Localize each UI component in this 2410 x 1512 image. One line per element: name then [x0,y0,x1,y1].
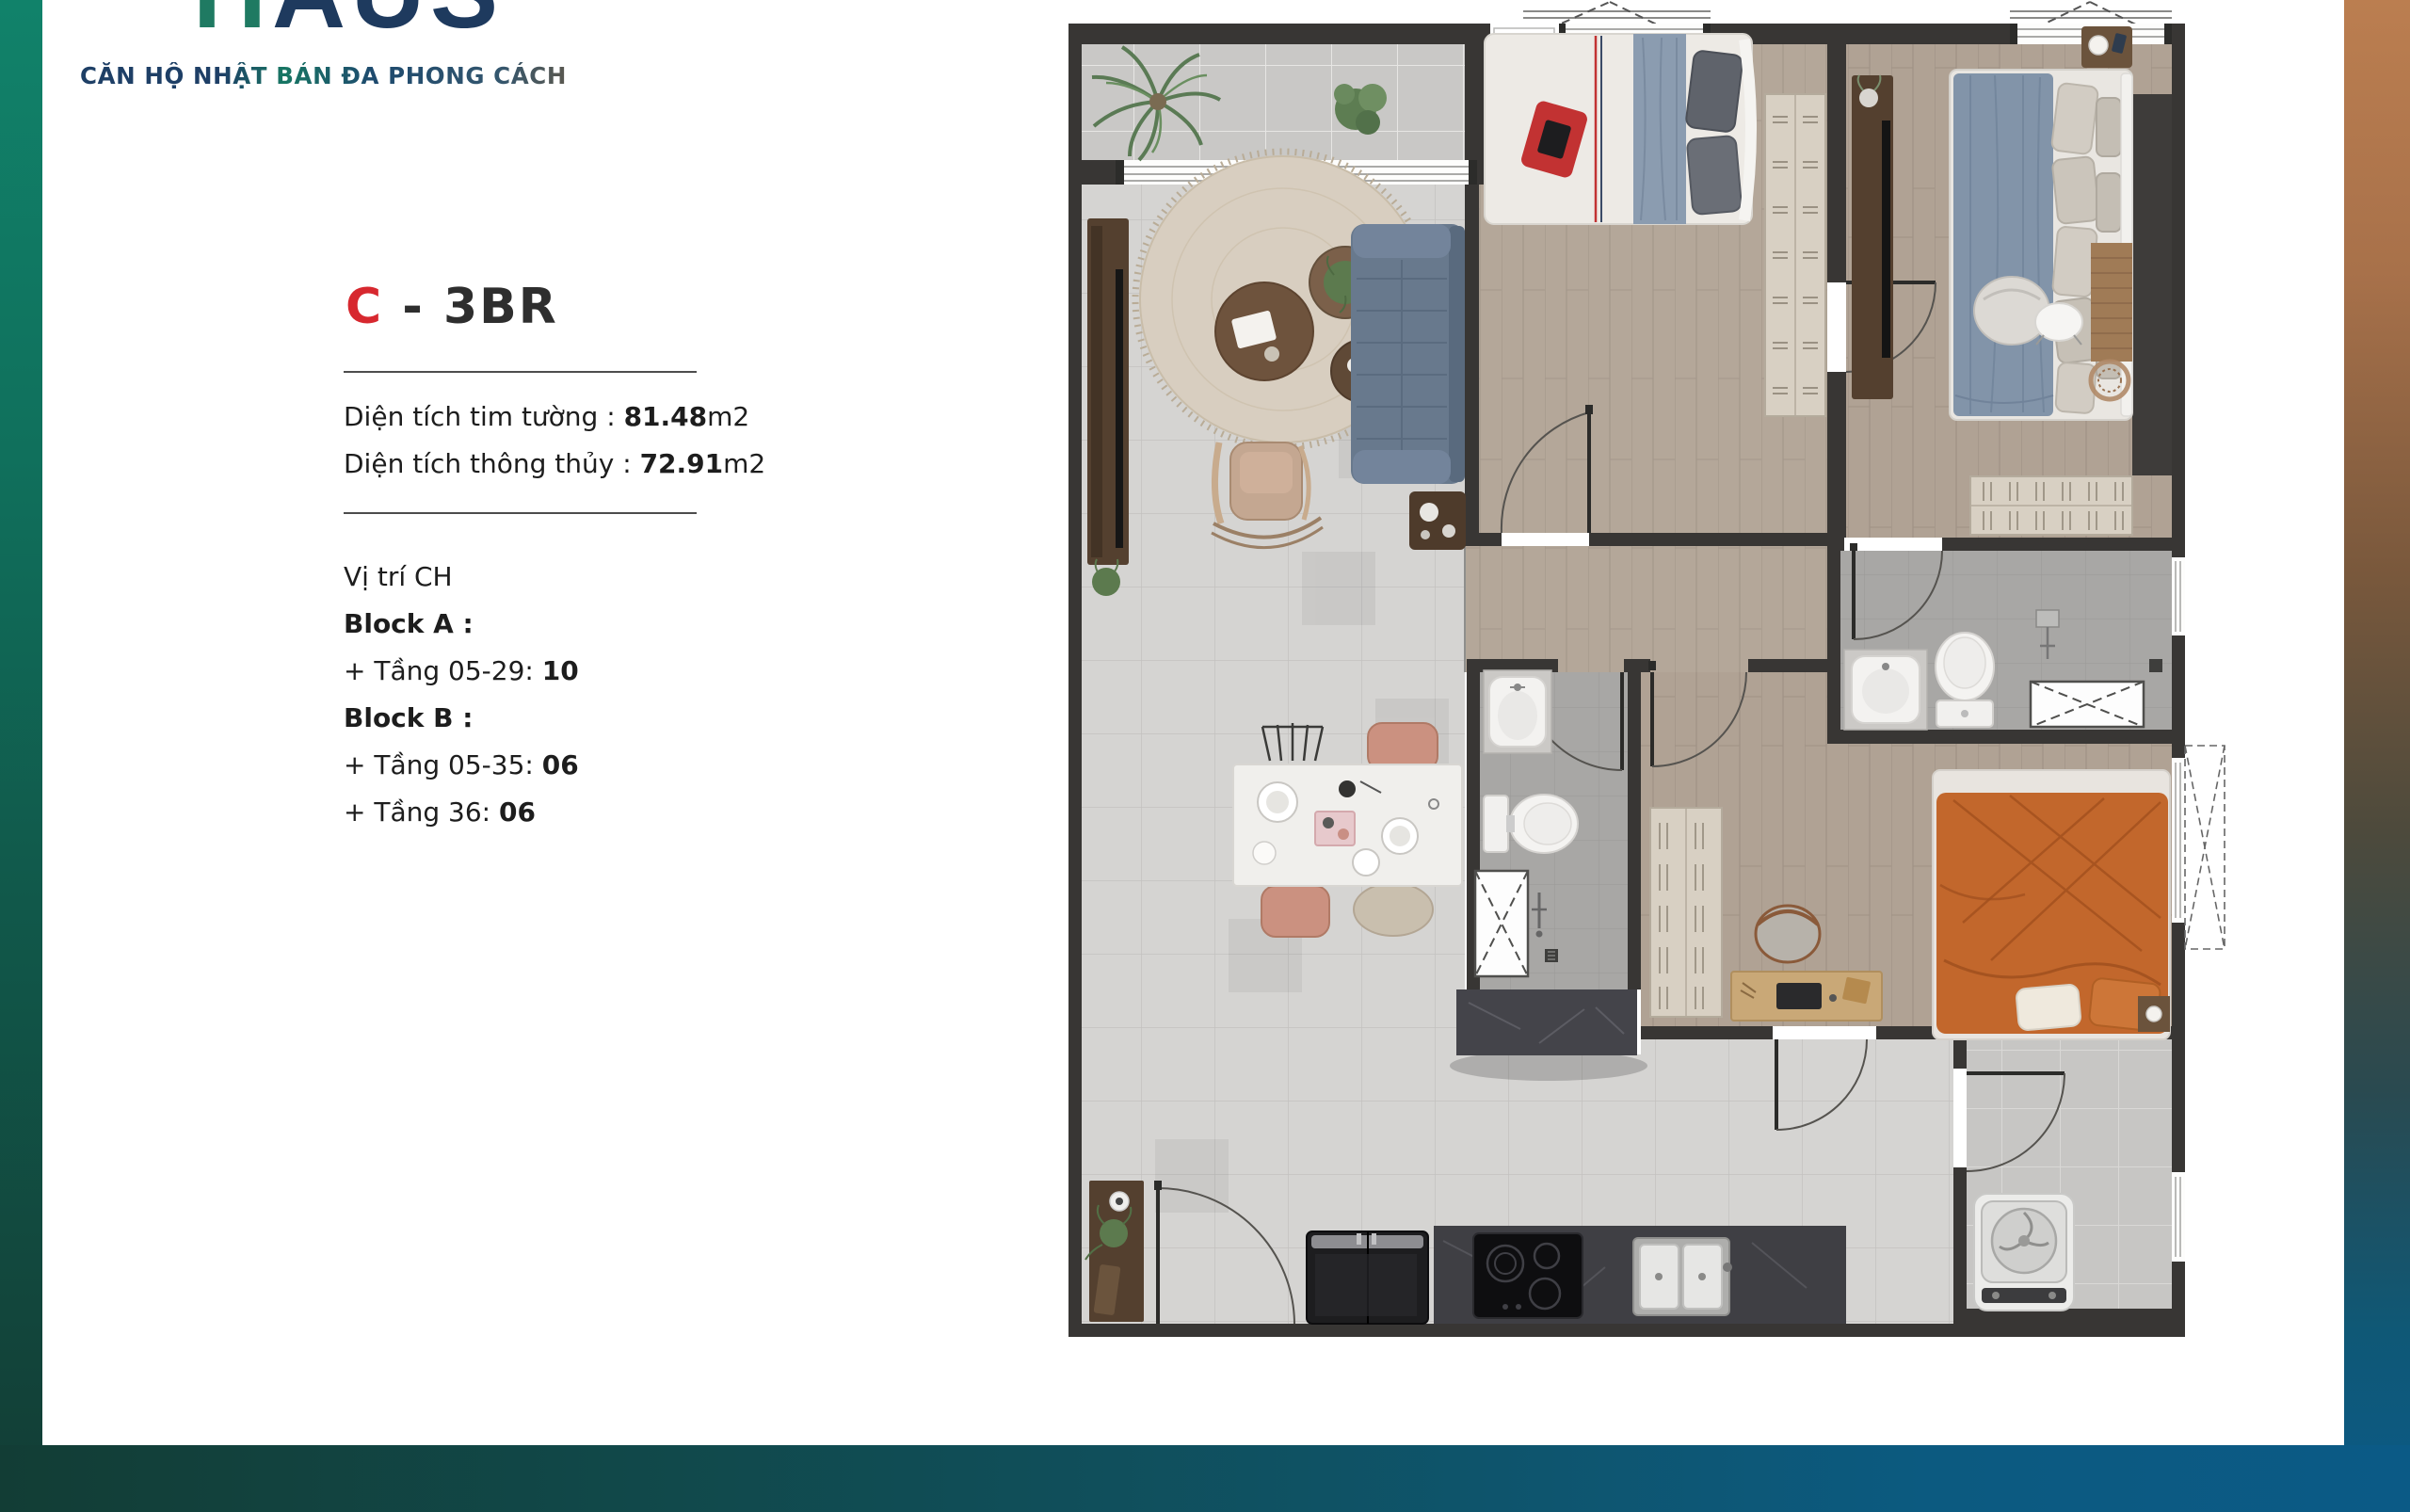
bedroom3-desk [1731,972,1882,1021]
side-table [1409,491,1466,550]
bottom-accent-bar [0,1445,2410,1512]
divider-bottom [344,512,697,514]
cooktop [1473,1233,1583,1318]
area-row-net: Diện tích thông thủy : 72.91m2 [344,441,765,488]
location-block-a: Block A : [344,601,474,648]
fridge [1307,1231,1428,1324]
left-accent-bar [0,0,42,1512]
location-row: + Tầng 05-29: 10 [344,648,579,695]
bedroom3-nightstand [2138,996,2170,1032]
hall-floor [1465,546,1827,672]
location-row: + Tầng 36: 06 [344,789,536,836]
master-wardrobe [1970,476,2132,535]
master-nightstand [2081,26,2132,68]
area-row-gross: Diện tích tim tường : 81.48m2 [344,394,749,441]
orange-bed [1933,770,2170,1039]
bathroom2-toilet [1484,795,1578,853]
location-row: + Tầng 05-35: 06 [344,742,579,789]
bedroom3-chair [1756,906,1820,962]
bed1 [1485,34,1752,224]
brand-logo: HAUS [193,0,588,38]
location-block-b: Block B : [344,695,473,742]
brand-logo-letter: H [193,0,272,38]
location-heading: Vị trí CH [344,554,453,601]
brand-logo-letters: AUS [272,0,504,38]
kitchen-sink [1633,1238,1732,1315]
bathroom1-sink [1844,650,1927,730]
page: { "brand": { "logo_text_first": "H", "lo… [0,0,2410,1512]
sofa [1351,224,1465,484]
laundry-window [2172,1172,2185,1262]
unit-code: C [345,279,383,335]
washing-machine [1974,1194,2074,1311]
divider-top [344,371,697,373]
bedroom3-closet [1650,808,1722,1017]
bathroom1-window [2172,557,2185,635]
bed1-wardrobe [1765,94,1825,416]
marble-counter [1450,989,1647,1081]
master-tv-console [1852,75,1893,399]
unit-title: C - 3BR [345,279,558,335]
tv-console [1087,218,1129,596]
brand-logo-word: HAUS [193,0,588,38]
bedroom3-window [2172,758,2185,923]
floor-plan [1068,0,2226,1360]
brand-tagline: CĂN HỘ NHẬT BẢN ĐA PHONG CÁCH [80,62,645,89]
unit-name-suffix: - 3BR [402,279,558,335]
right-accent-bar [2344,0,2410,1512]
bathroom1-toilet [1936,633,1994,727]
entry-console [1085,1181,1144,1322]
bathroom2-sink [1484,670,1551,753]
ac-ledge [2185,746,2225,949]
